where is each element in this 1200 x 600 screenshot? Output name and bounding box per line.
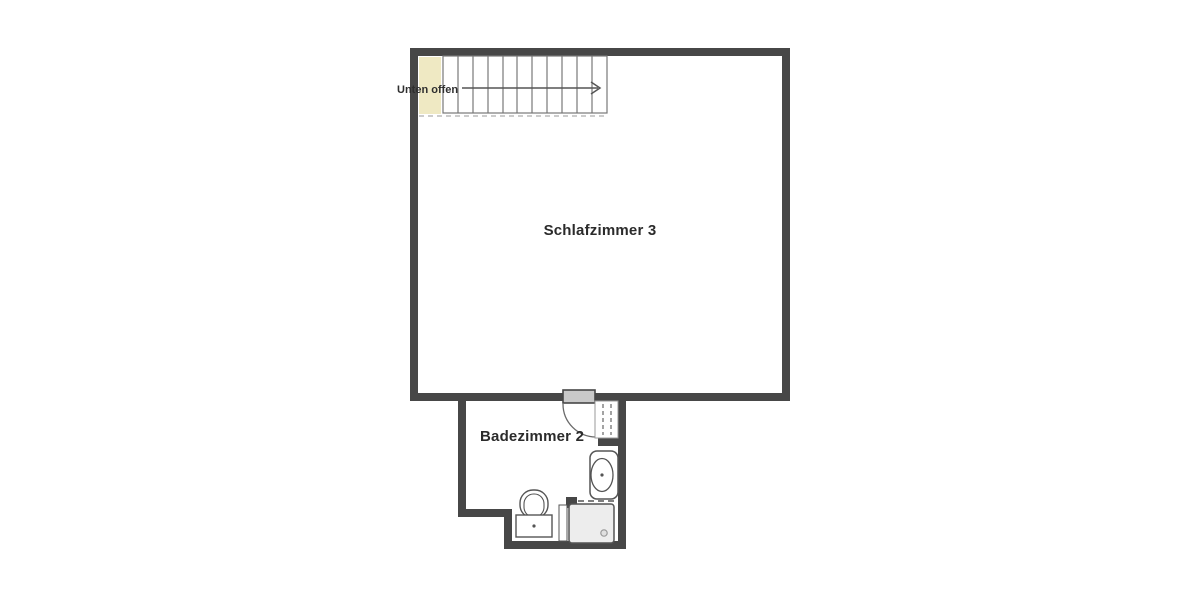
wall-top [410, 48, 790, 56]
floor-plan: Unten offen Schlafzimmer 3 Badezimmer 2 [0, 0, 1200, 600]
wardrobe-cabinet-icon [595, 401, 618, 438]
wall-left [410, 56, 418, 401]
shower-icon [559, 501, 614, 543]
wall-stub-under-cabinet [598, 438, 626, 446]
wall-right [782, 56, 790, 401]
shower-glass-side [559, 505, 567, 541]
wall-bottom-left-of-door [410, 393, 563, 401]
door-leaf [563, 390, 595, 403]
stair-run [443, 56, 607, 113]
wall-bath-left [458, 401, 466, 517]
shower-tray [569, 504, 614, 543]
shower-drain [601, 530, 607, 536]
wall-bottom-right-of-door [595, 393, 790, 401]
washbasin-icon [590, 451, 618, 499]
label-schlafzimmer-3: Schlafzimmer 3 [418, 222, 782, 239]
floor-plan-drawing [0, 0, 1200, 600]
wall-bath-step-horizontal [458, 509, 512, 517]
label-badezimmer-2: Badezimmer 2 [480, 428, 584, 445]
toilet-icon [516, 490, 552, 537]
label-unten-offen: Unten offen [397, 84, 458, 96]
wall-bath-right [618, 401, 626, 549]
